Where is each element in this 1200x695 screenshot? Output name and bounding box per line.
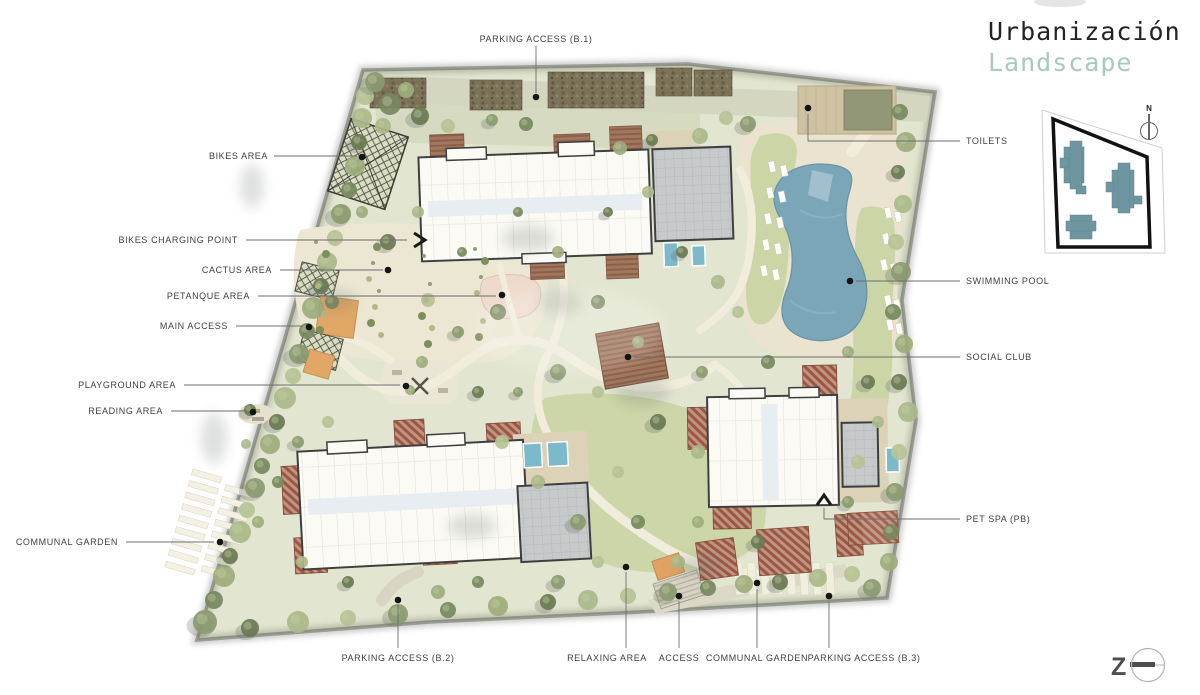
watermark (475, 288, 665, 372)
label-communal-garden-bottom: COMMUNAL GARDEN (706, 652, 808, 664)
title-line2: Landscape (988, 47, 1181, 78)
location-key-map: N (1042, 104, 1165, 253)
top-edge-smudge (1034, 0, 1086, 7)
label-toilets: TOILETS (966, 135, 1008, 147)
label-communal-garden-left: COMMUNAL GARDEN (16, 536, 118, 548)
north-arrow-icon: N (1141, 104, 1158, 140)
z-logo: Z (1111, 649, 1165, 682)
label-pet-spa: PET SPA (PB) (966, 513, 1030, 525)
label-bikes-charging-point: BIKES CHARGING POINT (118, 234, 238, 246)
label-swimming-pool: SWIMMING POOL (966, 275, 1049, 287)
label-parking-access-b2: PARKING ACCESS (B.2) (342, 652, 455, 664)
label-parking-access-b3: PARKING ACCESS (B.3) (808, 652, 921, 664)
north-label: N (1146, 104, 1152, 113)
label-playground-area: PLAYGROUND AREA (78, 379, 176, 391)
site-plan: N Z (0, 0, 1200, 695)
label-bikes-area: BIKES AREA (209, 150, 268, 162)
z-logo-letter: Z (1111, 653, 1126, 681)
masterplan-page: N Z Urbanización Landscape PARKING ACCES… (0, 0, 1200, 695)
label-relaxing-area: RELAXING AREA (567, 652, 647, 664)
label-access: ACCESS (659, 652, 700, 664)
label-social-club: SOCIAL CLUB (966, 351, 1032, 363)
label-petanque-area: PETANQUE AREA (167, 290, 250, 302)
toilets-building (798, 86, 896, 134)
label-cactus-area: CACTUS AREA (202, 264, 272, 276)
title-line1: Urbanización (988, 16, 1181, 47)
label-reading-area: READING AREA (88, 405, 163, 417)
drawing-title: Urbanización Landscape (988, 16, 1181, 78)
label-parking-access-b1: PARKING ACCESS (B.1) (480, 33, 593, 45)
label-main-access: MAIN ACCESS (160, 320, 228, 332)
